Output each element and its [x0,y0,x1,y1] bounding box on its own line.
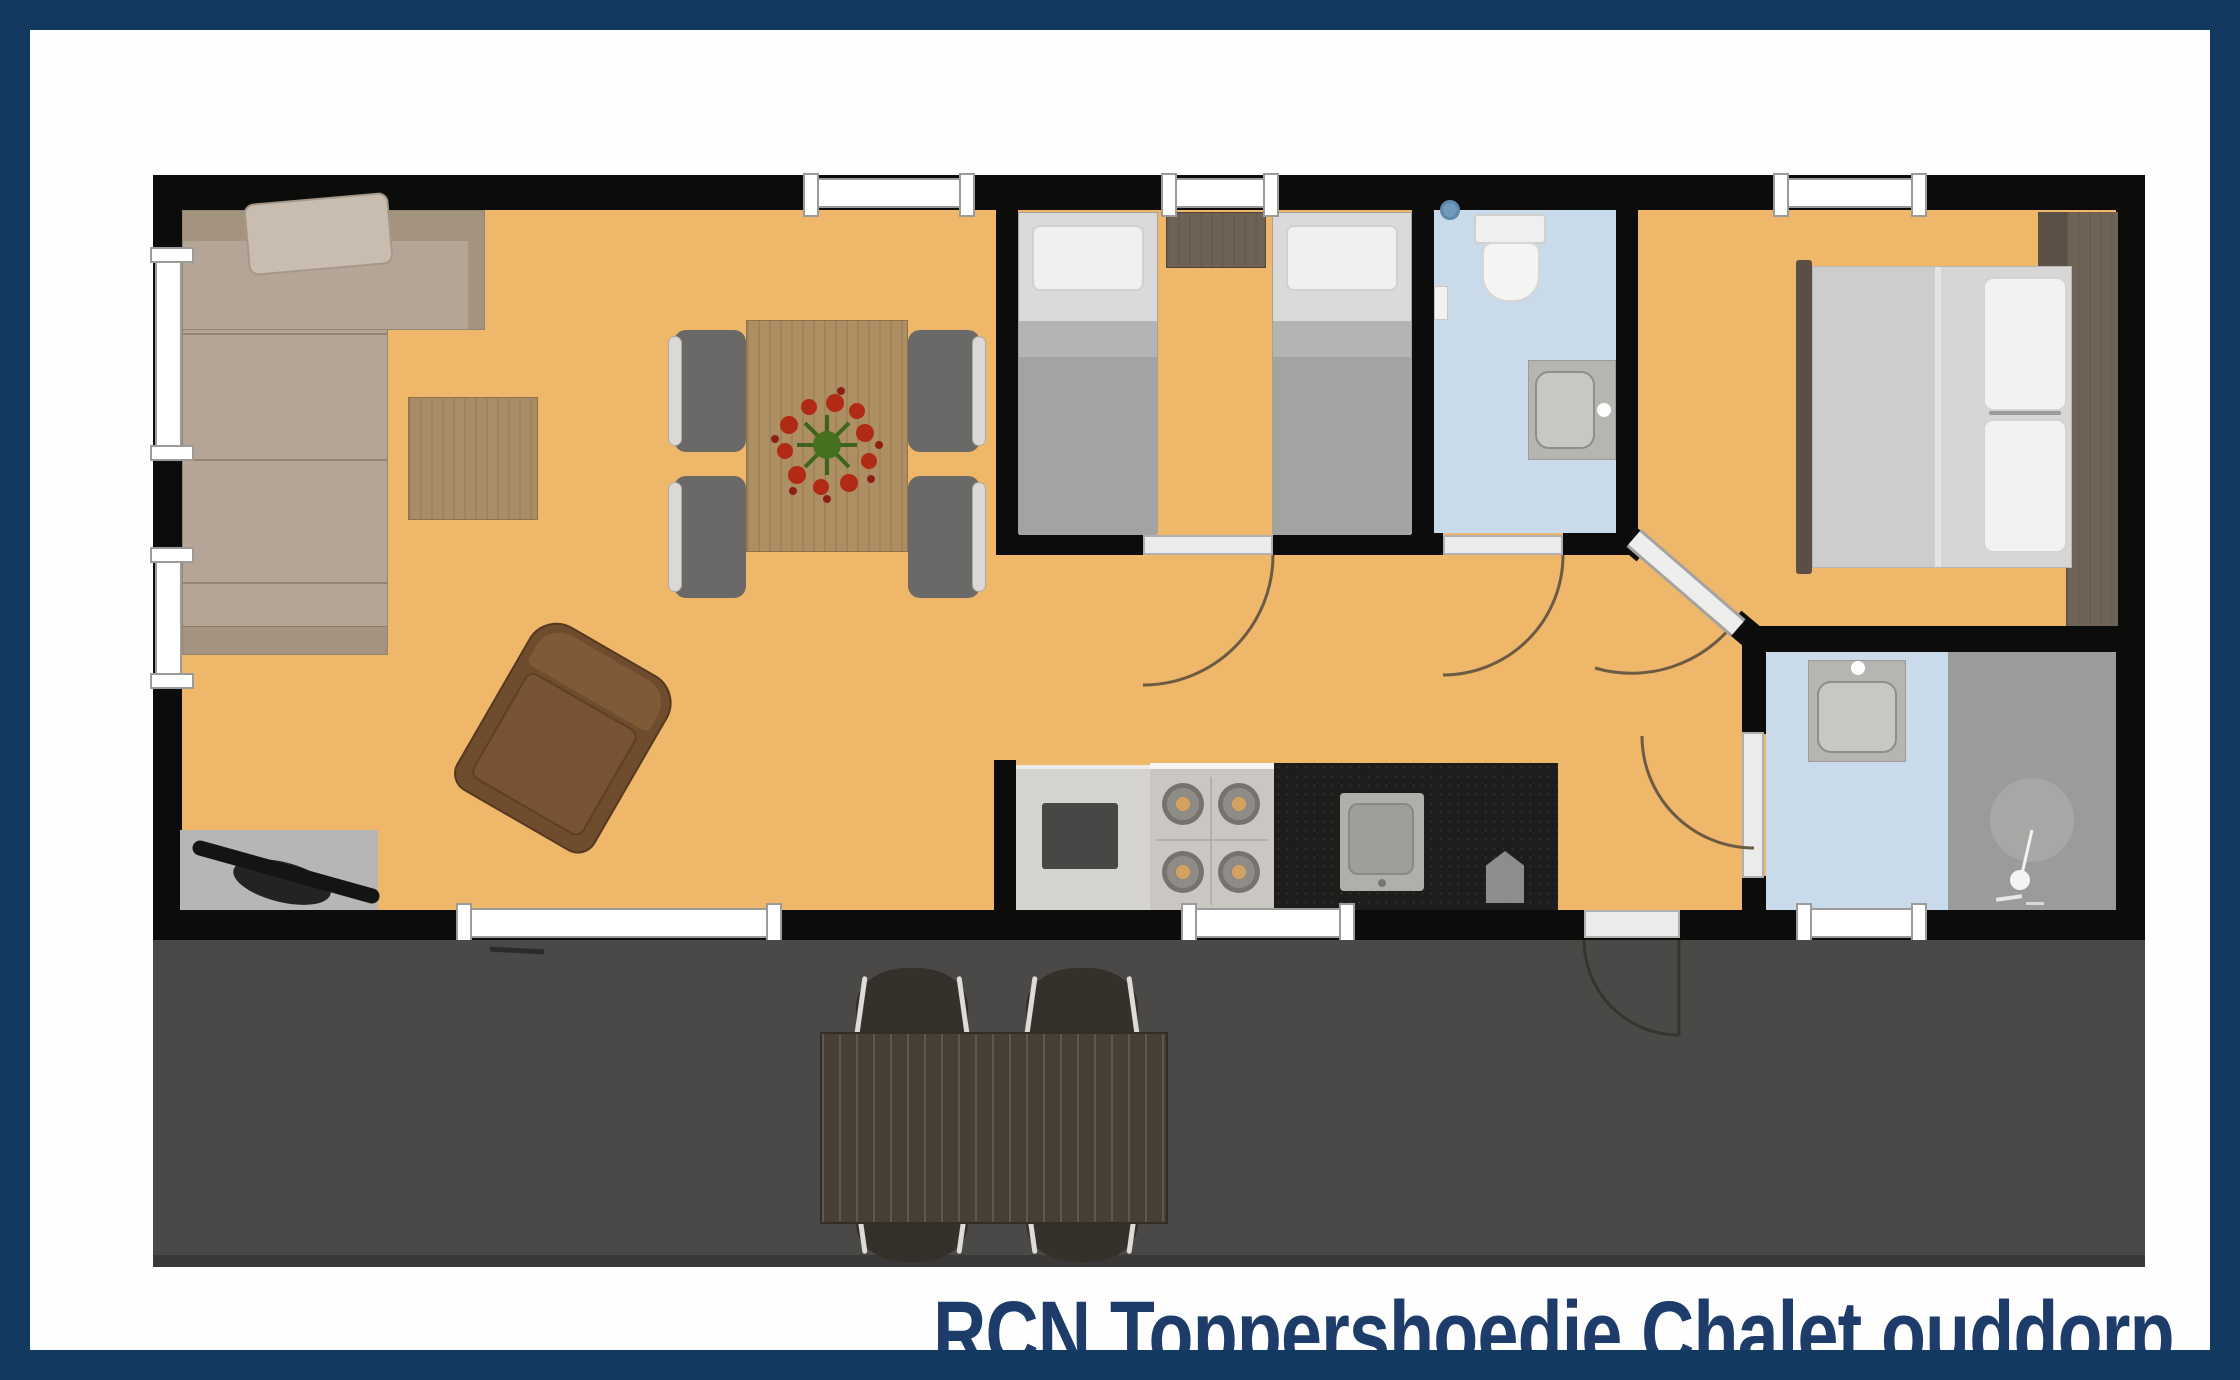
door-exterior-open [1584,940,1679,1035]
floor-plan-image: RCN Toppershoedje Chalet ouddorp [0,0,2240,1380]
arc-exterior-door [1584,940,1679,1035]
arc-double-bedroom-door [1595,622,1735,673]
tv-icon [200,848,372,914]
plan-annotations [30,30,2240,1380]
door-swing-arcs [1143,555,1754,848]
flower-centerpiece-icon [771,387,883,503]
plan-title: RCN Toppershoedje Chalet ouddorp [933,1282,2174,1380]
shower-icon [1990,778,2074,905]
double-bedroom-door-leaf [1634,538,1738,628]
arc-shower-room-door [1642,736,1754,848]
arc-twin-bedroom-door [1143,555,1273,685]
arc-bathroom-wc-door [1443,555,1563,675]
